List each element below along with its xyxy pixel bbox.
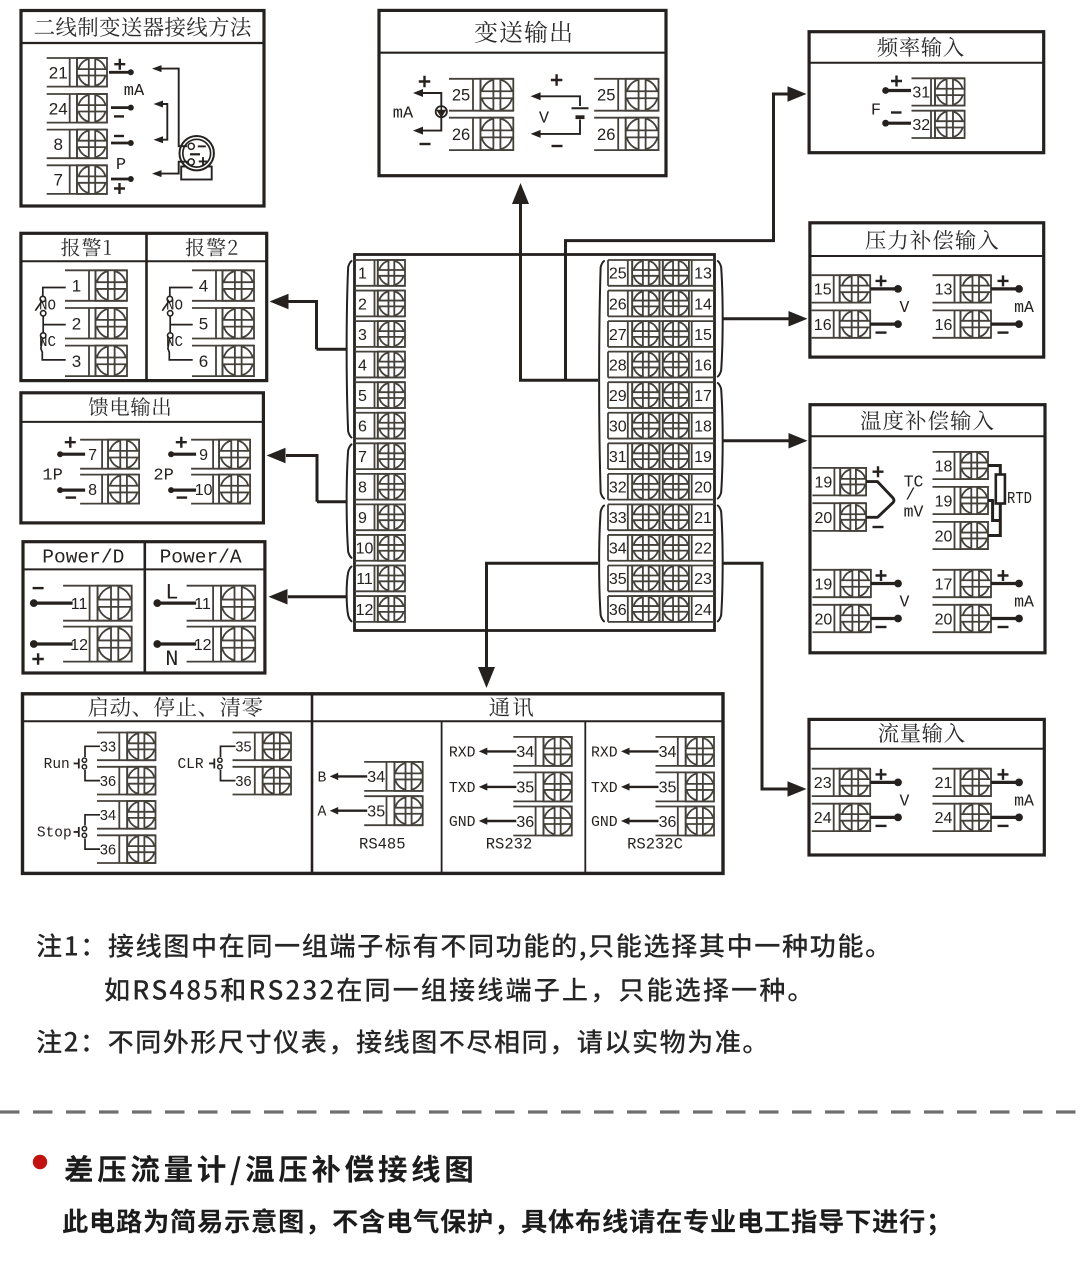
svg-text:24: 24 <box>814 810 832 827</box>
svg-text:22: 22 <box>694 541 712 558</box>
svg-text:35: 35 <box>235 740 251 756</box>
svg-text:15: 15 <box>694 327 712 344</box>
svg-text:14: 14 <box>694 296 712 313</box>
svg-text:35: 35 <box>659 780 677 797</box>
svg-text:23: 23 <box>694 571 712 588</box>
svg-text:7: 7 <box>88 447 97 464</box>
svg-text:13: 13 <box>935 282 953 299</box>
svg-text:32: 32 <box>912 117 930 134</box>
svg-text:16: 16 <box>694 357 712 374</box>
svg-text:20: 20 <box>694 480 712 497</box>
svg-text:25: 25 <box>609 266 627 283</box>
svg-text:32: 32 <box>609 480 627 497</box>
svg-text:6: 6 <box>358 418 367 435</box>
svg-text:16: 16 <box>814 317 832 334</box>
svg-text:13: 13 <box>694 266 712 283</box>
svg-text:28: 28 <box>609 357 627 374</box>
svg-text:F: F <box>871 102 881 121</box>
svg-text:27: 27 <box>609 327 627 344</box>
svg-text:7: 7 <box>53 171 62 190</box>
svg-text:RTD: RTD <box>1007 489 1032 508</box>
svg-text:21: 21 <box>694 510 712 527</box>
svg-text:36: 36 <box>659 814 677 831</box>
svg-text:GND: GND <box>449 815 476 831</box>
svg-text:5: 5 <box>358 388 367 405</box>
svg-text:8: 8 <box>358 480 367 497</box>
svg-text:36: 36 <box>100 774 116 790</box>
svg-text:20: 20 <box>815 510 833 527</box>
svg-text:TXD: TXD <box>591 781 618 797</box>
svg-text:V: V <box>539 110 550 129</box>
svg-text:19: 19 <box>815 474 833 491</box>
svg-text:34: 34 <box>367 769 385 786</box>
svg-text:mA: mA <box>1014 791 1034 810</box>
svg-text:GND: GND <box>591 815 618 831</box>
svg-text:CLR: CLR <box>177 757 203 773</box>
svg-text:24: 24 <box>935 810 953 827</box>
svg-text:25: 25 <box>597 87 615 105</box>
svg-text:mA: mA <box>1014 298 1034 317</box>
svg-text:23: 23 <box>814 775 832 792</box>
svg-text:34: 34 <box>609 541 627 558</box>
svg-text:Stop: Stop <box>37 825 72 841</box>
svg-text:V: V <box>900 298 910 317</box>
svg-text:36: 36 <box>235 774 251 790</box>
svg-text:11: 11 <box>356 571 373 588</box>
svg-text:5: 5 <box>199 314 208 333</box>
svg-text:35: 35 <box>367 803 385 820</box>
svg-text:6: 6 <box>199 352 208 371</box>
svg-text:11: 11 <box>71 596 88 613</box>
svg-text:12: 12 <box>356 602 374 619</box>
svg-text:25: 25 <box>452 87 470 105</box>
svg-text:12: 12 <box>70 637 88 654</box>
svg-text:mA: mA <box>124 82 145 101</box>
svg-text:29: 29 <box>609 388 627 405</box>
svg-text:mA: mA <box>1014 593 1034 612</box>
svg-text:18: 18 <box>694 418 712 435</box>
svg-text:RXD: RXD <box>449 745 476 761</box>
svg-text:34: 34 <box>516 744 534 761</box>
svg-text:9: 9 <box>199 447 208 464</box>
svg-text:3: 3 <box>72 352 81 371</box>
svg-text:18: 18 <box>935 458 953 475</box>
svg-text:2: 2 <box>72 314 81 333</box>
svg-text:31: 31 <box>609 449 627 466</box>
svg-text:20: 20 <box>935 528 953 545</box>
svg-text:17: 17 <box>935 576 953 593</box>
svg-text:36: 36 <box>609 602 627 619</box>
svg-text:34: 34 <box>659 744 677 761</box>
svg-text:1P: 1P <box>42 467 62 486</box>
svg-text:20: 20 <box>815 611 833 628</box>
svg-text:34: 34 <box>100 808 116 824</box>
svg-text:4: 4 <box>199 277 208 296</box>
svg-text:B: B <box>318 770 327 786</box>
svg-text:8: 8 <box>53 135 62 154</box>
svg-text:19: 19 <box>694 449 712 466</box>
svg-text:TXD: TXD <box>449 781 476 797</box>
svg-text:11: 11 <box>194 596 211 613</box>
svg-text:12: 12 <box>194 637 212 654</box>
svg-text:35: 35 <box>609 571 627 588</box>
svg-text:2: 2 <box>358 296 367 313</box>
svg-text:mA: mA <box>393 105 414 124</box>
svg-text:RS232: RS232 <box>486 835 533 853</box>
svg-text:V: V <box>900 593 910 612</box>
svg-text:8: 8 <box>88 482 97 499</box>
svg-text:31: 31 <box>912 85 930 102</box>
svg-text:3: 3 <box>358 327 367 344</box>
svg-text:1: 1 <box>358 266 367 283</box>
svg-text:26: 26 <box>597 126 615 144</box>
svg-text:RS485: RS485 <box>359 835 406 853</box>
svg-text:30: 30 <box>609 418 627 435</box>
svg-text:Run: Run <box>44 757 70 773</box>
svg-text:Power/D: Power/D <box>42 547 124 569</box>
svg-text:16: 16 <box>935 317 953 334</box>
svg-text:33: 33 <box>609 510 627 527</box>
svg-text:26: 26 <box>609 296 627 313</box>
svg-text:4: 4 <box>358 357 367 374</box>
svg-text:36: 36 <box>100 842 116 858</box>
svg-text:L: L <box>165 581 178 606</box>
svg-text:36: 36 <box>516 814 534 831</box>
svg-text:RS232C: RS232C <box>627 835 683 853</box>
svg-text:10: 10 <box>195 482 213 499</box>
svg-text:20: 20 <box>935 611 953 628</box>
svg-text:21: 21 <box>935 775 953 792</box>
svg-text:19: 19 <box>815 576 833 593</box>
svg-text:24: 24 <box>694 602 712 619</box>
svg-text:1: 1 <box>72 277 81 296</box>
svg-text:17: 17 <box>694 388 712 405</box>
svg-text:Power/A: Power/A <box>160 547 242 569</box>
svg-text:7: 7 <box>358 449 367 466</box>
svg-text:RXD: RXD <box>591 745 618 761</box>
svg-text:N: N <box>165 647 178 672</box>
svg-text:mV: mV <box>904 503 924 522</box>
svg-text:A: A <box>318 805 327 821</box>
svg-text:9: 9 <box>358 510 367 527</box>
svg-text:2P: 2P <box>153 467 173 486</box>
svg-text:35: 35 <box>516 780 534 797</box>
svg-text:24: 24 <box>49 99 68 118</box>
svg-text:26: 26 <box>452 126 470 144</box>
svg-text:33: 33 <box>100 740 116 756</box>
svg-text:P: P <box>116 156 126 175</box>
svg-text:19: 19 <box>935 493 953 510</box>
svg-text:15: 15 <box>814 282 832 299</box>
svg-text:10: 10 <box>356 541 374 558</box>
svg-text:21: 21 <box>49 63 68 82</box>
svg-text:V: V <box>900 791 910 810</box>
